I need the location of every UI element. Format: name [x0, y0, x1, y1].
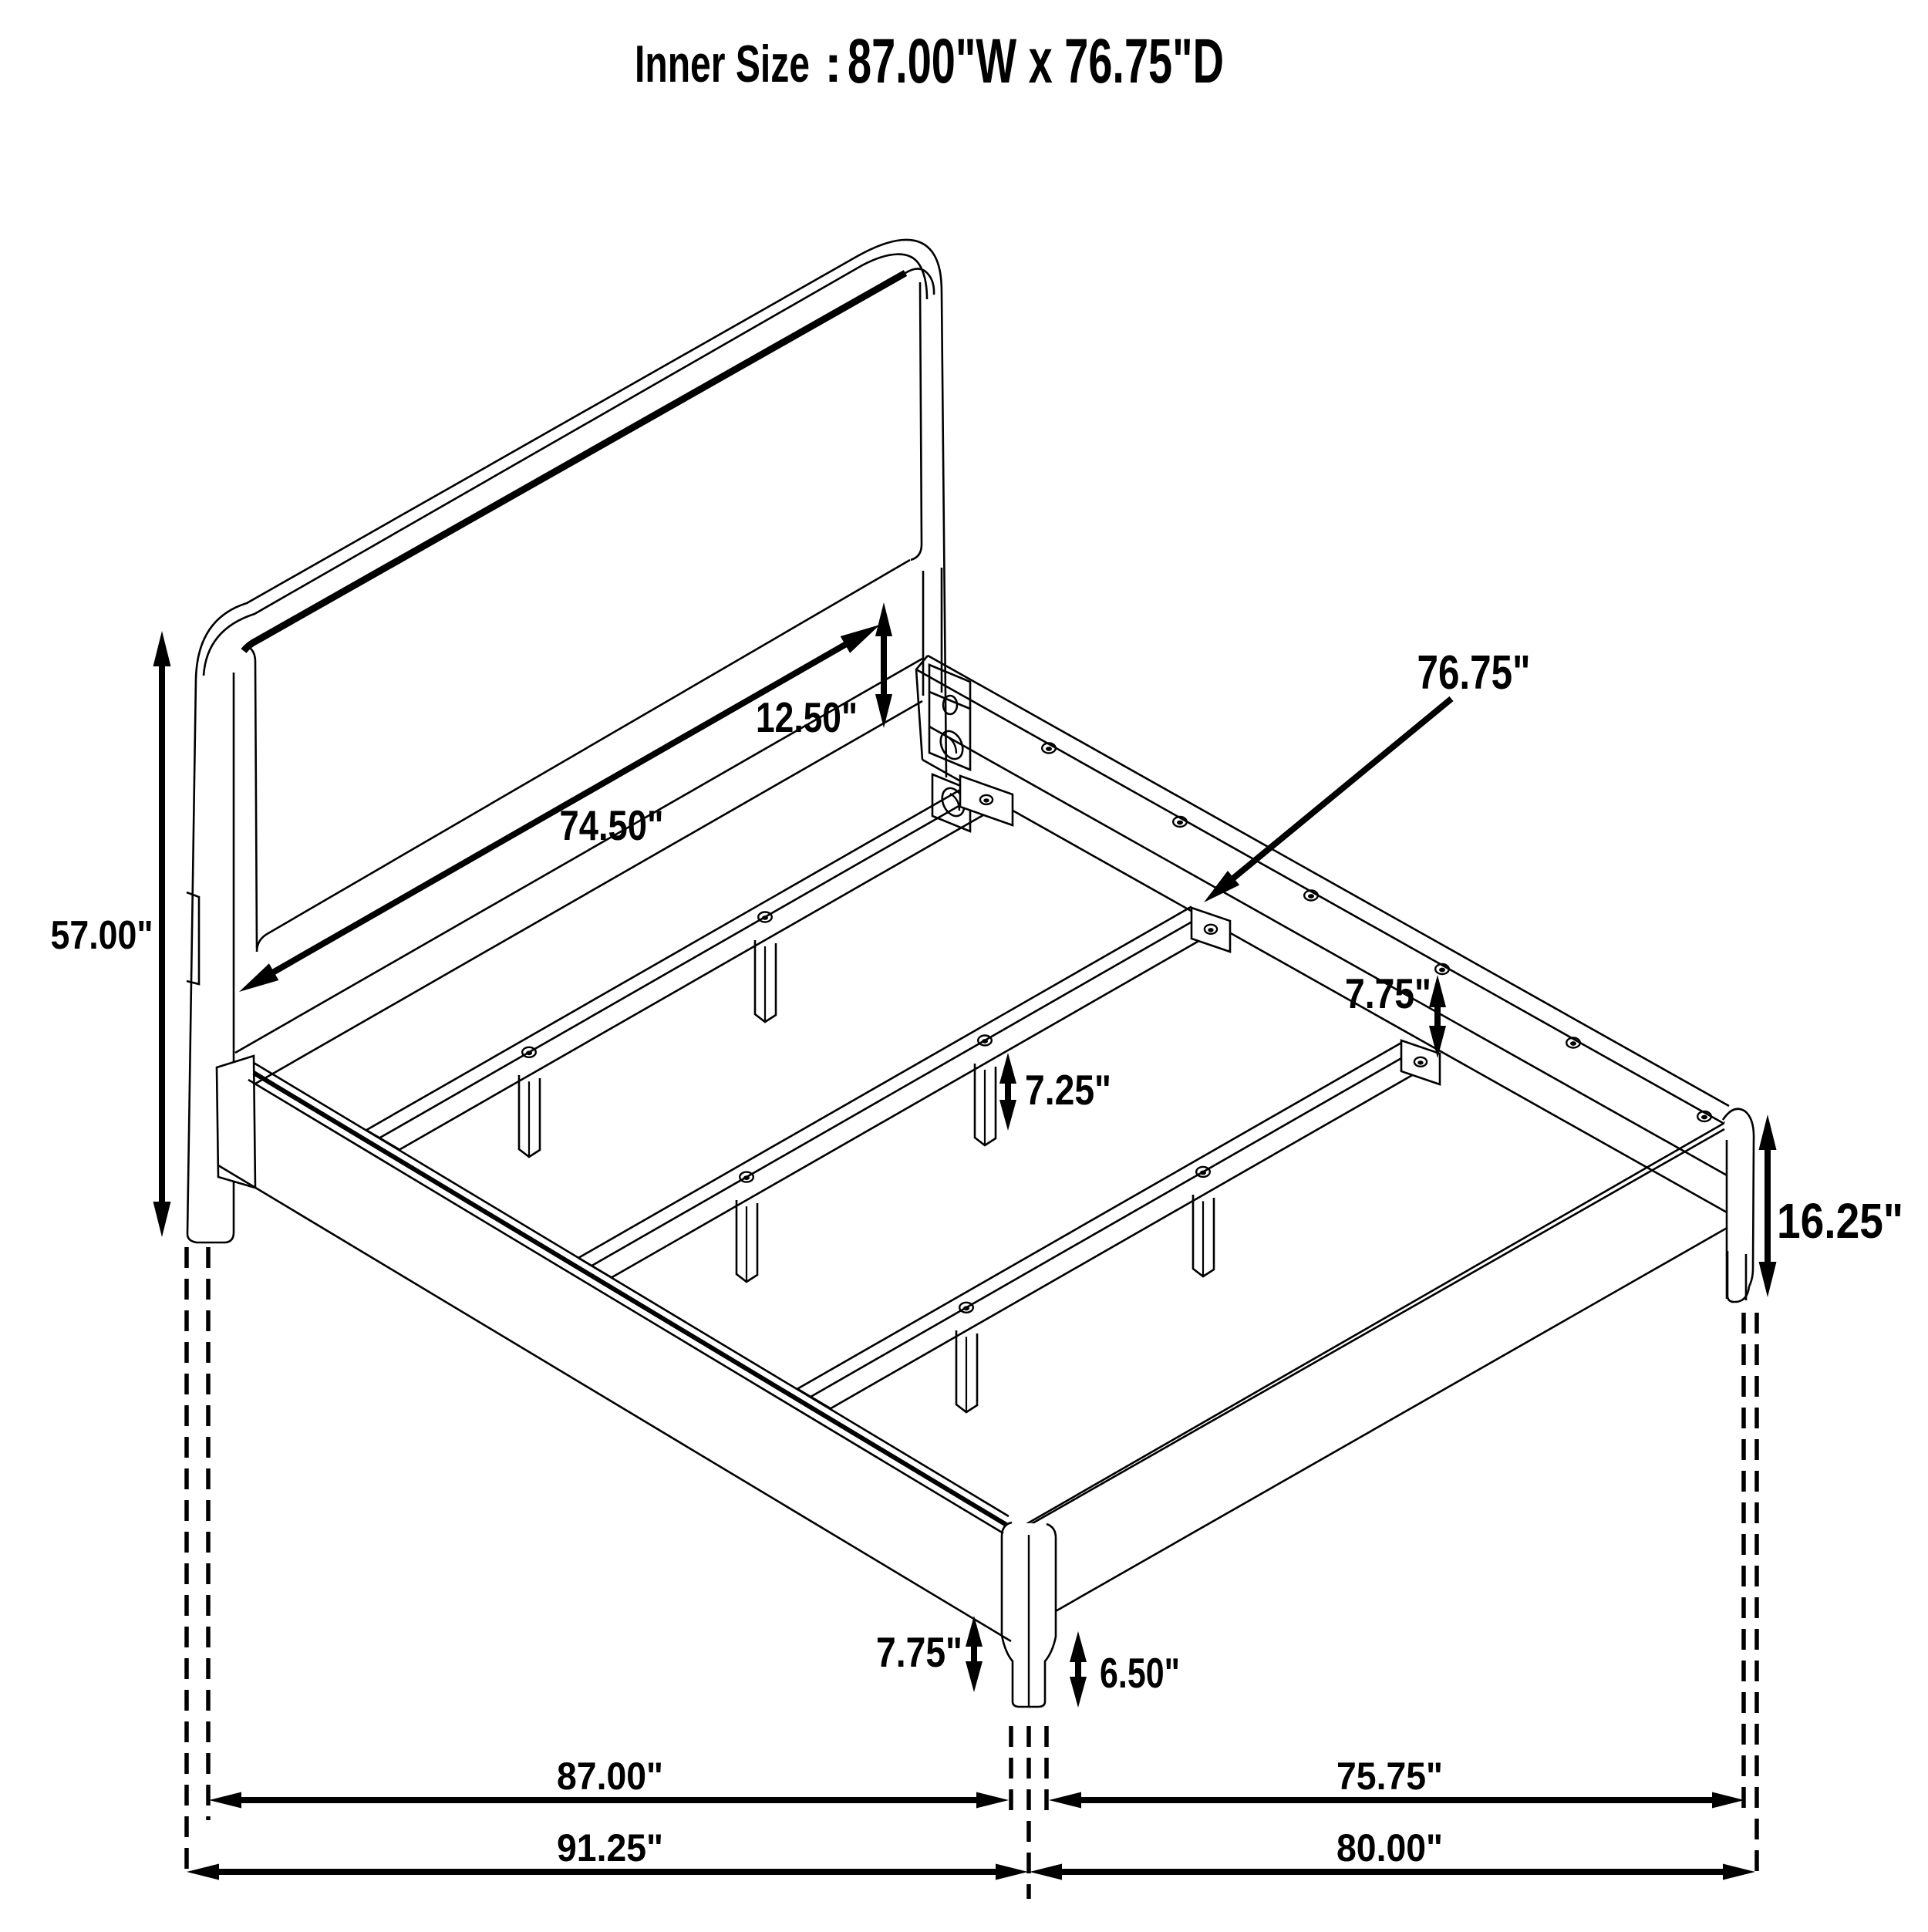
svg-text:6.50": 6.50" [1100, 1649, 1180, 1697]
svg-text:87.00": 87.00" [557, 1755, 663, 1798]
svg-text::: : [824, 35, 842, 93]
svg-text:74.50": 74.50" [560, 801, 664, 849]
svg-text:7.25": 7.25" [1025, 1066, 1111, 1114]
svg-text:76.75": 76.75" [1417, 646, 1531, 700]
svg-text:75.75": 75.75" [1336, 1755, 1443, 1798]
svg-text:12.50": 12.50" [756, 693, 858, 741]
svg-text:Inner Size: Inner Size [635, 35, 810, 93]
svg-text:57.00": 57.00" [51, 913, 153, 958]
svg-text:7.75": 7.75" [1345, 969, 1431, 1017]
svg-text:16.25": 16.25" [1777, 1193, 1903, 1249]
svg-text:91.25": 91.25" [557, 1826, 663, 1870]
svg-text:7.75": 7.75" [876, 1628, 962, 1676]
svg-text:80.00": 80.00" [1336, 1826, 1443, 1870]
svg-text:87.00"W x 76.75"D: 87.00"W x 76.75"D [848, 26, 1224, 96]
